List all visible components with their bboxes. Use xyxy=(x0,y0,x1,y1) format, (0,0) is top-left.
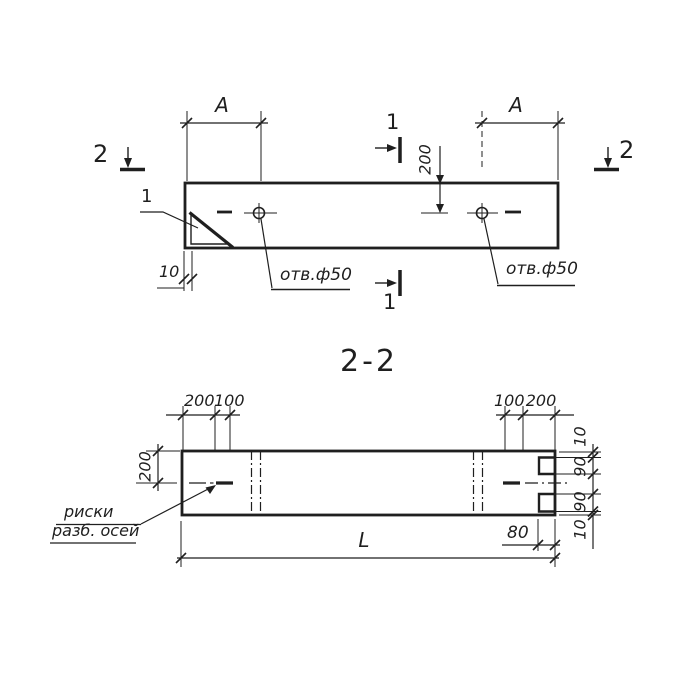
plan-detail-leader xyxy=(140,212,198,228)
plan-section-mark-2-right xyxy=(594,147,619,170)
plan-beam-outline xyxy=(185,183,558,248)
section-dim-top-right xyxy=(496,406,574,450)
plan-section-mark-2-left xyxy=(120,147,145,170)
dim-a-right-label: A xyxy=(501,95,531,115)
plan-hole-left xyxy=(244,203,277,223)
plan-dim-a-left xyxy=(180,111,268,181)
section-dim-top-right-100-label: 100 xyxy=(494,393,524,409)
section-mark-2-right-label: 2 xyxy=(619,138,634,162)
dim-10-plan-label: 10 xyxy=(159,264,179,280)
section-dim-top-left xyxy=(166,406,240,450)
section-beam-outline xyxy=(182,451,555,515)
plan-hole-right xyxy=(467,203,498,223)
section-dim-length-label: L xyxy=(350,530,378,550)
drawing-canvas: 2 2 1 1 1 A A 200 10 отв.ф50 отв.ф50 2-2… xyxy=(0,0,700,700)
section-notch-bottom xyxy=(539,494,555,512)
hole-label-left: отв.ф50 xyxy=(280,267,352,284)
section-title: 2-2 xyxy=(340,347,398,377)
section-mark-1-top-label: 1 xyxy=(386,112,399,133)
section-mark-1-bottom-label: 1 xyxy=(383,292,396,313)
hole-label-right: отв.ф50 xyxy=(506,261,578,278)
axis-marks-label-line2: разб. осей xyxy=(52,523,139,539)
section-notch-top xyxy=(539,458,555,475)
plan-dim-a-right xyxy=(475,111,565,180)
dim-a-left-label: A xyxy=(207,95,237,115)
section-dim-top-right-200-label: 200 xyxy=(525,393,557,409)
dim-200-plan-label: 200 xyxy=(418,139,435,181)
section-dim-80-label: 80 xyxy=(507,525,529,542)
section-dim-left-200-label: 200 xyxy=(138,446,155,488)
plan-section-mark-1-top xyxy=(375,137,400,163)
section-dim-top-left-200-label: 200 xyxy=(184,393,214,409)
section-dim-top-left-100-label: 100 xyxy=(214,393,244,409)
plan-chamfer-triangle xyxy=(190,213,234,248)
axis-marks-label-line1: риски xyxy=(64,504,113,520)
section-dim-right-10-bottom-label: 10 xyxy=(573,509,590,551)
detail-ref-label: 1 xyxy=(141,188,152,206)
section-mark-2-left-label: 2 xyxy=(93,142,108,166)
